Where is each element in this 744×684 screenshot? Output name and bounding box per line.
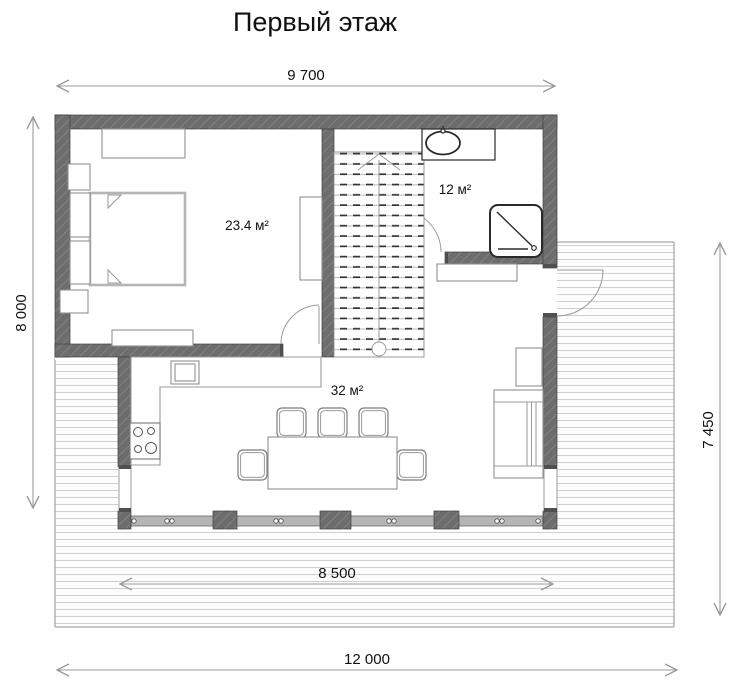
kitchen-sink-basin	[175, 364, 195, 381]
chair	[318, 408, 347, 438]
wall-cap	[543, 313, 557, 317]
bathroom-area-label: 12 м²	[439, 182, 472, 197]
wall-east-lower	[543, 317, 557, 467]
stove	[130, 423, 160, 459]
bed	[90, 193, 185, 285]
chair	[238, 450, 267, 480]
dining-table	[268, 437, 397, 489]
pillar	[320, 511, 351, 529]
wall-west-bedroom	[55, 115, 70, 357]
window-east	[544, 467, 557, 511]
nightstand	[68, 164, 90, 190]
bed-pillow	[70, 193, 90, 237]
chair	[397, 450, 426, 480]
wall-north	[55, 115, 557, 129]
faucet-knob	[441, 129, 445, 133]
sink	[426, 132, 460, 155]
stairs	[334, 152, 424, 357]
bedroom-area-label: 23.4 м²	[225, 218, 269, 233]
nightstand	[60, 290, 88, 313]
deck-bottom	[55, 527, 674, 627]
wall-stair-hall	[322, 129, 334, 357]
wall-cap	[280, 344, 283, 357]
burner	[134, 428, 143, 437]
hall-bench	[437, 264, 517, 281]
dresser	[112, 330, 193, 346]
chair	[277, 408, 306, 438]
entry-porch	[557, 242, 674, 527]
bed-pillow	[70, 241, 90, 284]
wall-west-kitchen	[118, 357, 131, 467]
stair-start-circle	[372, 342, 386, 356]
corner-post-sw	[118, 511, 131, 529]
dim-label-top: 9 700	[287, 67, 325, 84]
shower-drain	[532, 246, 537, 251]
pillar	[434, 511, 459, 529]
wall-cap	[445, 252, 448, 264]
cabinet	[300, 197, 322, 280]
page-title: Первый этаж	[233, 7, 397, 37]
burner	[148, 428, 155, 435]
wall-cap	[543, 264, 557, 268]
wardrobe	[102, 129, 185, 158]
side-table	[516, 348, 542, 386]
dim-label-deck: 8 500	[318, 565, 356, 582]
pillar	[213, 511, 237, 529]
dim-label-total: 12 000	[344, 651, 390, 668]
corner-post-se	[543, 511, 557, 529]
living-area-label: 32 м²	[331, 383, 364, 398]
window-west	[119, 467, 131, 511]
wall-east-upper	[543, 115, 557, 268]
dim-label-right: 7 450	[700, 411, 717, 449]
dim-label-left: 8 000	[13, 294, 30, 332]
burner	[135, 446, 142, 453]
floor-plan-page: Первый этаж 9 700 8 000 7 450 8 500 12 0…	[0, 0, 744, 684]
burner	[146, 443, 157, 454]
chair	[359, 408, 388, 438]
floor-plan-svg: Первый этаж 9 700 8 000 7 450 8 500 12 0…	[0, 0, 744, 684]
